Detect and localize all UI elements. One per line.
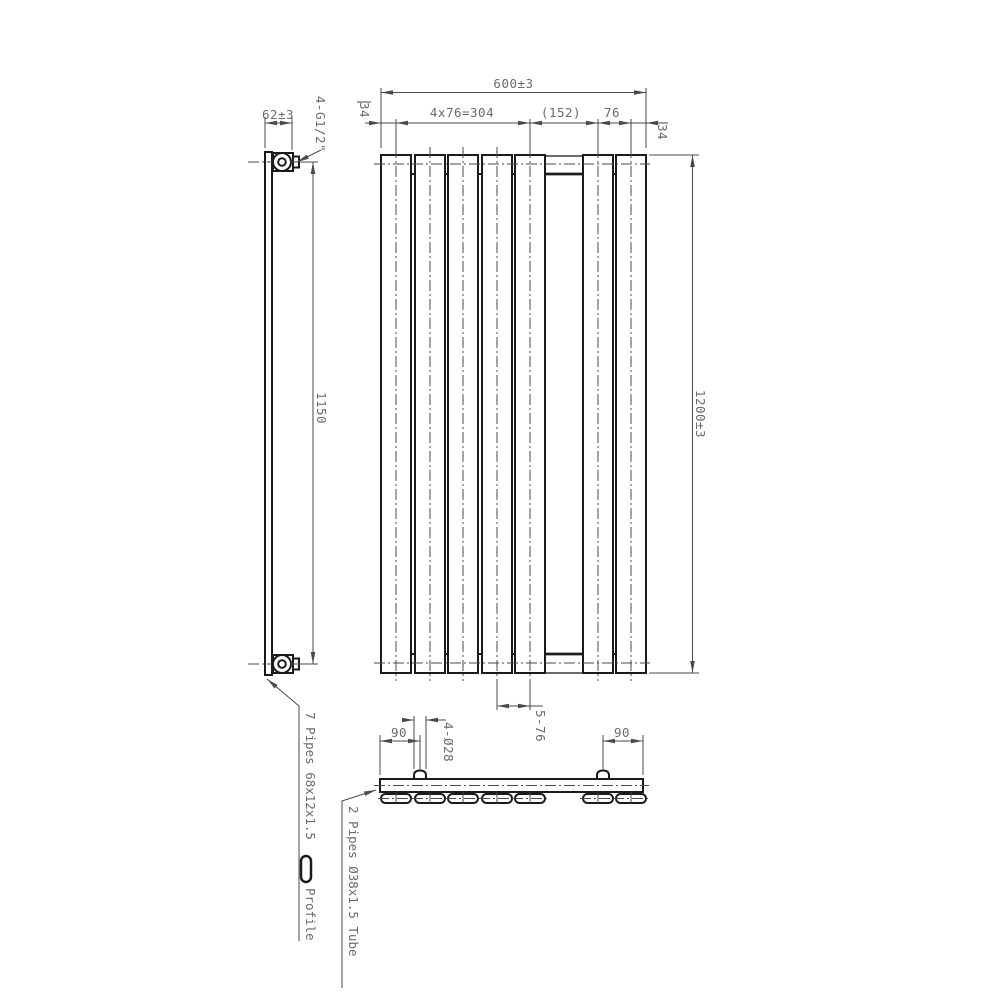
dim-connections: 4-G1/2" [313,96,328,152]
side-panel-profile [265,152,272,675]
dim-inlet-left: 90 [391,725,407,740]
profile-note-leader [267,679,299,941]
dim-center-gap: (152) [541,105,581,120]
radiator-technical-drawing: 600±3 34 4x76=304 (152) 76 34 1200±3 62±… [0,0,1000,1000]
dim-panel-pitch: 5-76 [533,710,548,742]
dim-overall-width: 600±3 [493,76,533,91]
tube-note-arrow [364,790,376,796]
dim-pitch-right: 76 [604,105,620,120]
right-inlet-boss [597,771,609,780]
dim-pipe-centres: 1150 [314,392,329,424]
left-inlet-boss [414,771,426,780]
profile-section-glyph [301,856,311,882]
bottom-view [374,771,649,805]
dim-overall-height: 1200±3 [693,390,708,438]
profile-note-text: 7 Pipes 68x12x1.5 [303,712,318,840]
top-header-tube-in-gap [545,156,583,174]
dim-margin-left: 34 [357,102,372,118]
top-fitting-outer-circle [273,153,291,171]
panel-sections [378,793,649,805]
dim-margin-right: 34 [655,124,670,140]
side-view [248,152,306,675]
dim-pitch-group: 4x76=304 [430,105,494,120]
front-view [374,147,650,681]
notes: 7 Pipes 68x12x1.5 Profile 2 Pipes Ø38x1.… [267,679,376,988]
bottom-fitting-outer-circle [273,655,291,673]
drawing-canvas: 600±3 34 4x76=304 (152) 76 34 1200±3 62±… [0,0,1000,1000]
dim-inlet-right: 90 [614,725,630,740]
dim-depth: 62±3 [262,107,294,122]
tube-note-text: 2 Pipes Ø38x1.5 Tube [346,806,361,957]
dim-boss-diameter: 4-Ø28 [441,722,456,762]
profile-note-suffix: Profile [303,888,318,941]
